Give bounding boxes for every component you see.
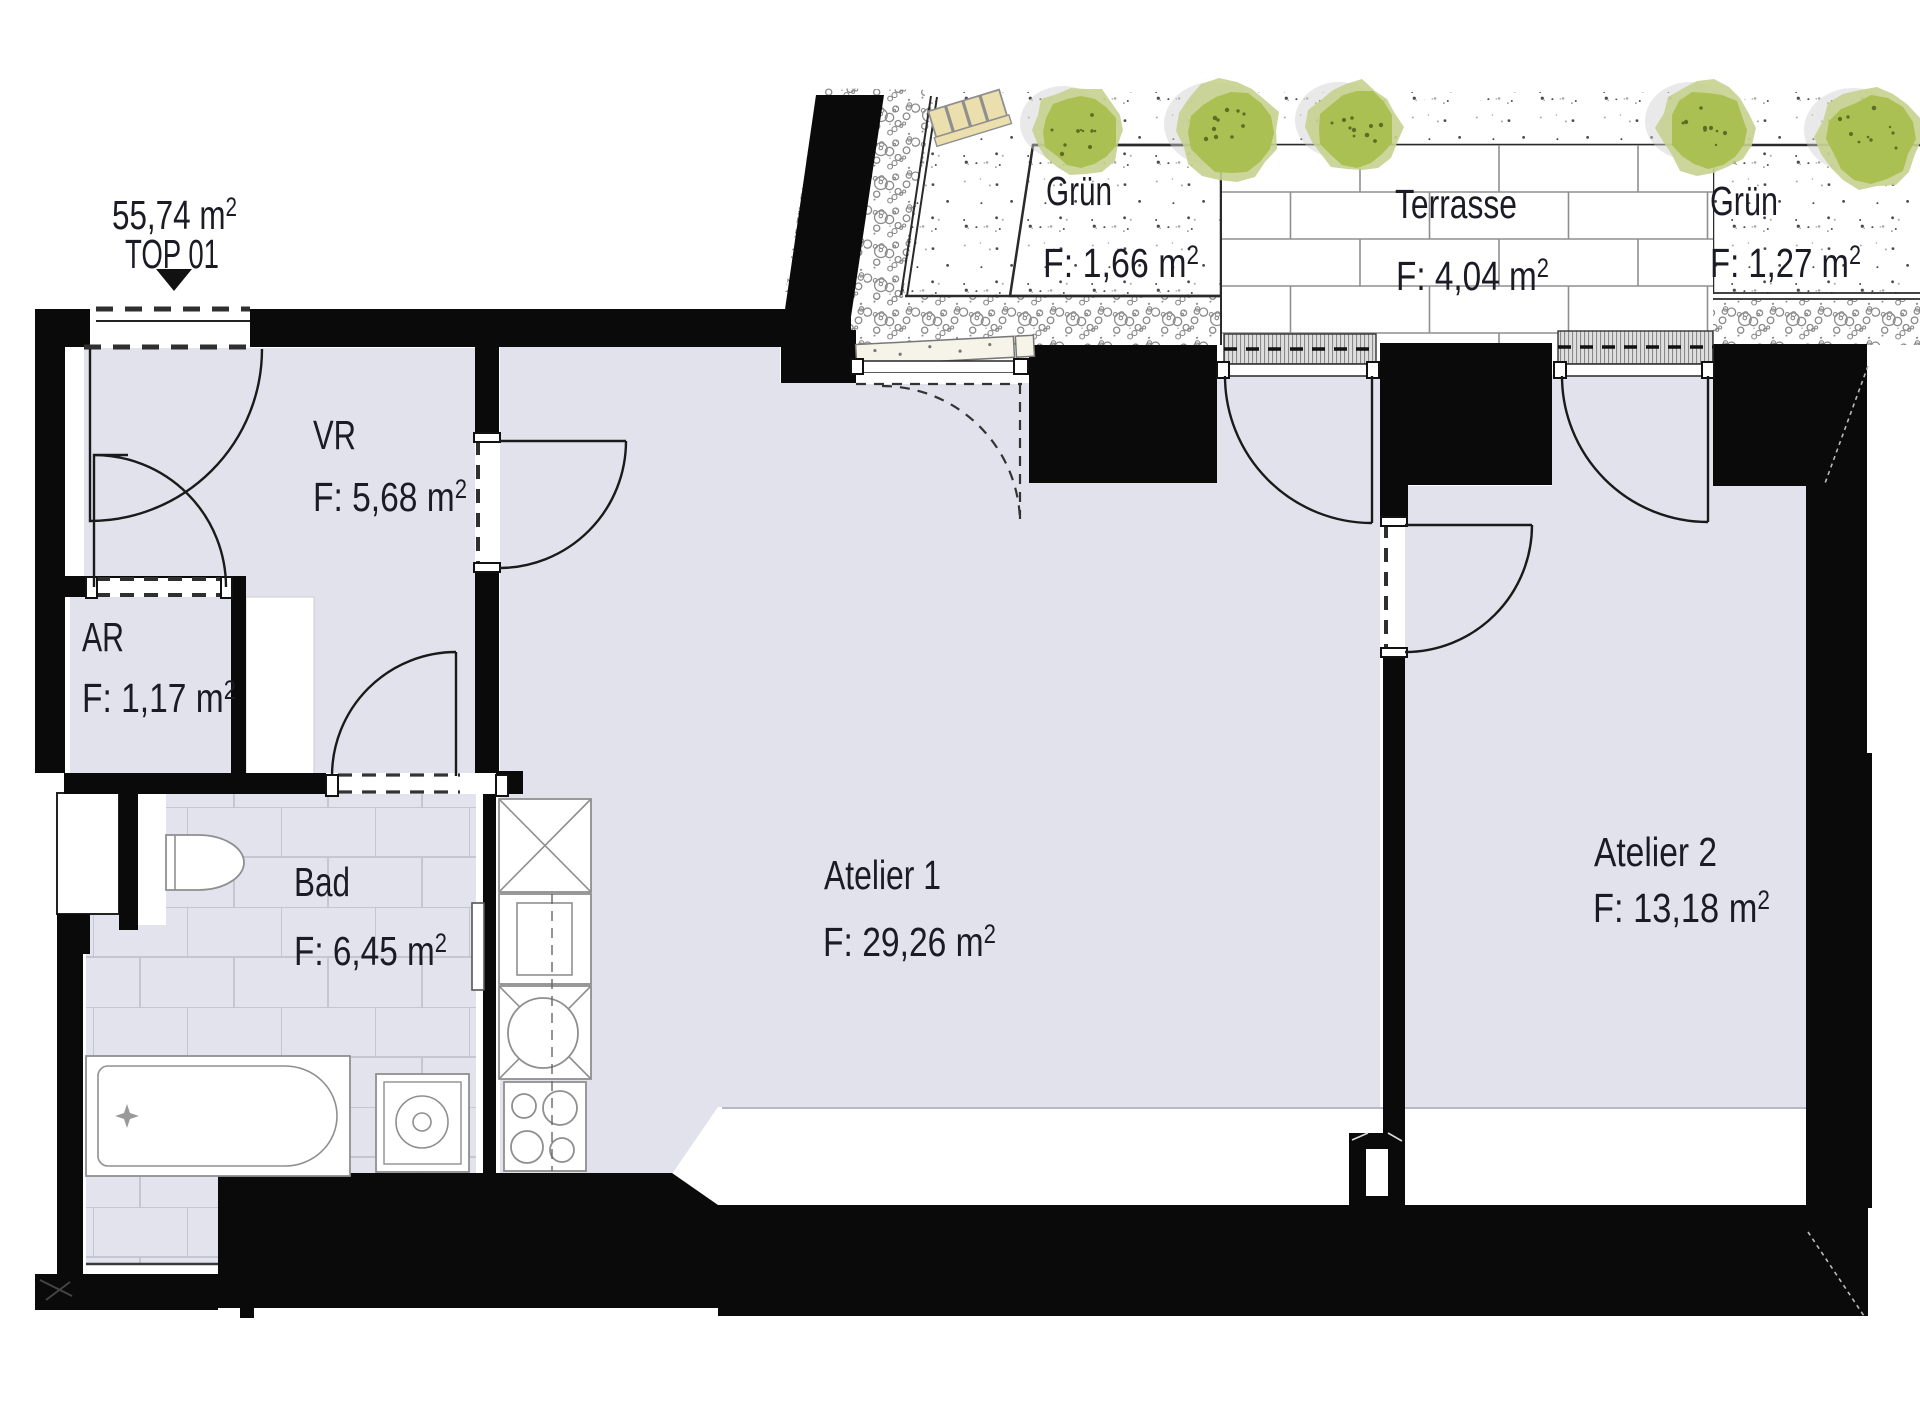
svg-text:Atelier 1: Atelier 1: [824, 852, 941, 898]
svg-text:F: 6,45 m2: F: 6,45 m2: [294, 928, 447, 974]
svg-text:F: 1,17 m2: F: 1,17 m2: [82, 675, 236, 721]
svg-text:F: 1,27 m2: F: 1,27 m2: [1710, 240, 1861, 286]
svg-text:F: 5,68 m2: F: 5,68 m2: [313, 474, 467, 520]
svg-text:TOP 01: TOP 01: [125, 231, 219, 277]
svg-text:Bad: Bad: [294, 859, 350, 905]
svg-text:VR: VR: [313, 412, 356, 458]
svg-text:AR: AR: [82, 614, 124, 660]
svg-text:Grün: Grün: [1710, 178, 1778, 224]
svg-text:F: 13,18 m2: F: 13,18 m2: [1593, 885, 1770, 931]
svg-text:F: 1,66 m2: F: 1,66 m2: [1043, 240, 1199, 286]
svg-text:Terrasse: Terrasse: [1395, 181, 1517, 227]
svg-text:F: 29,26 m2: F: 29,26 m2: [823, 919, 996, 965]
svg-text:F: 4,04 m2: F: 4,04 m2: [1396, 253, 1549, 299]
svg-text:Grün: Grün: [1046, 168, 1112, 214]
svg-text:Atelier 2: Atelier 2: [1594, 829, 1717, 875]
